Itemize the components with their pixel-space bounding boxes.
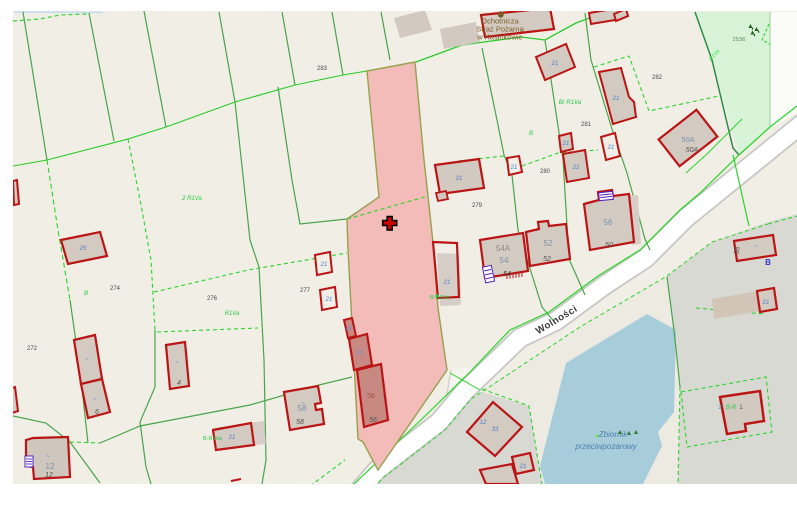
- svg-text:50A: 50A: [686, 147, 699, 154]
- svg-text:21: 21: [443, 280, 451, 286]
- svg-text:~: ~: [754, 244, 758, 250]
- svg-text:54: 54: [500, 256, 509, 265]
- svg-text:21: 21: [228, 435, 236, 441]
- svg-text:33: 33: [492, 427, 499, 433]
- svg-text:52: 52: [544, 239, 553, 248]
- svg-text:21: 21: [519, 464, 527, 470]
- svg-text:25: 25: [79, 246, 87, 252]
- svg-text:21: 21: [607, 145, 615, 151]
- svg-text:12: 12: [45, 472, 53, 479]
- svg-text:274: 274: [110, 286, 121, 292]
- svg-text:~: ~: [93, 397, 97, 403]
- svg-text:21: 21: [320, 262, 328, 268]
- svg-text:21: 21: [356, 350, 364, 356]
- svg-text:B: B: [529, 131, 533, 137]
- svg-text:B-R1Va: B-R1Va: [203, 436, 223, 442]
- svg-text:Zbiornik: Zbiornik: [598, 430, 628, 439]
- svg-text:R1Va: R1Va: [225, 311, 240, 317]
- svg-text:50A: 50A: [681, 135, 694, 144]
- svg-text:21: 21: [562, 141, 570, 147]
- svg-text:21: 21: [345, 326, 353, 332]
- svg-text:w Kasinkowie: w Kasinkowie: [476, 33, 522, 42]
- svg-text:281: 281: [581, 122, 592, 128]
- svg-text:277: 277: [300, 288, 311, 294]
- svg-text:przeciwpożarowy: przeciwpożarowy: [574, 442, 637, 451]
- svg-text:54A: 54A: [496, 244, 511, 253]
- svg-text:4: 4: [177, 380, 181, 387]
- svg-text:2536: 2536: [733, 37, 746, 43]
- svg-text:52: 52: [543, 256, 551, 263]
- svg-text:280: 280: [540, 169, 551, 175]
- svg-text:B: B: [84, 291, 88, 297]
- svg-text:56: 56: [367, 393, 375, 400]
- svg-text:~: ~: [85, 357, 89, 363]
- svg-text:B-R: B-R: [726, 405, 737, 411]
- svg-text:21: 21: [762, 300, 770, 306]
- svg-text:21: 21: [455, 176, 463, 182]
- svg-text:21: 21: [325, 297, 333, 303]
- svg-text:B: B: [765, 258, 771, 267]
- svg-text:B-R1Va: B-R1Va: [430, 295, 450, 301]
- svg-text:21: 21: [510, 165, 518, 171]
- svg-text:56: 56: [604, 218, 613, 227]
- svg-text:50: 50: [605, 242, 613, 249]
- svg-text:12: 12: [480, 420, 487, 426]
- svg-text:Br R1Va: Br R1Va: [559, 100, 582, 106]
- svg-text:21: 21: [612, 96, 620, 102]
- svg-text:272: 272: [27, 346, 38, 352]
- svg-text:56: 56: [369, 417, 377, 424]
- svg-text:276: 276: [207, 296, 218, 302]
- svg-text:21: 21: [551, 61, 559, 67]
- svg-text:58: 58: [298, 404, 307, 413]
- svg-text:58: 58: [296, 419, 304, 426]
- svg-text:282: 282: [652, 75, 663, 81]
- svg-text:12: 12: [46, 462, 55, 471]
- svg-text:6: 6: [95, 409, 99, 416]
- svg-text:21: 21: [572, 165, 580, 171]
- svg-text:68: 68: [733, 246, 741, 255]
- svg-text:~: ~: [46, 454, 50, 460]
- svg-text:2 R1Va: 2 R1Va: [181, 196, 202, 202]
- svg-text:279: 279: [472, 203, 483, 209]
- svg-text:~: ~: [175, 360, 179, 366]
- svg-text:283: 283: [317, 66, 328, 72]
